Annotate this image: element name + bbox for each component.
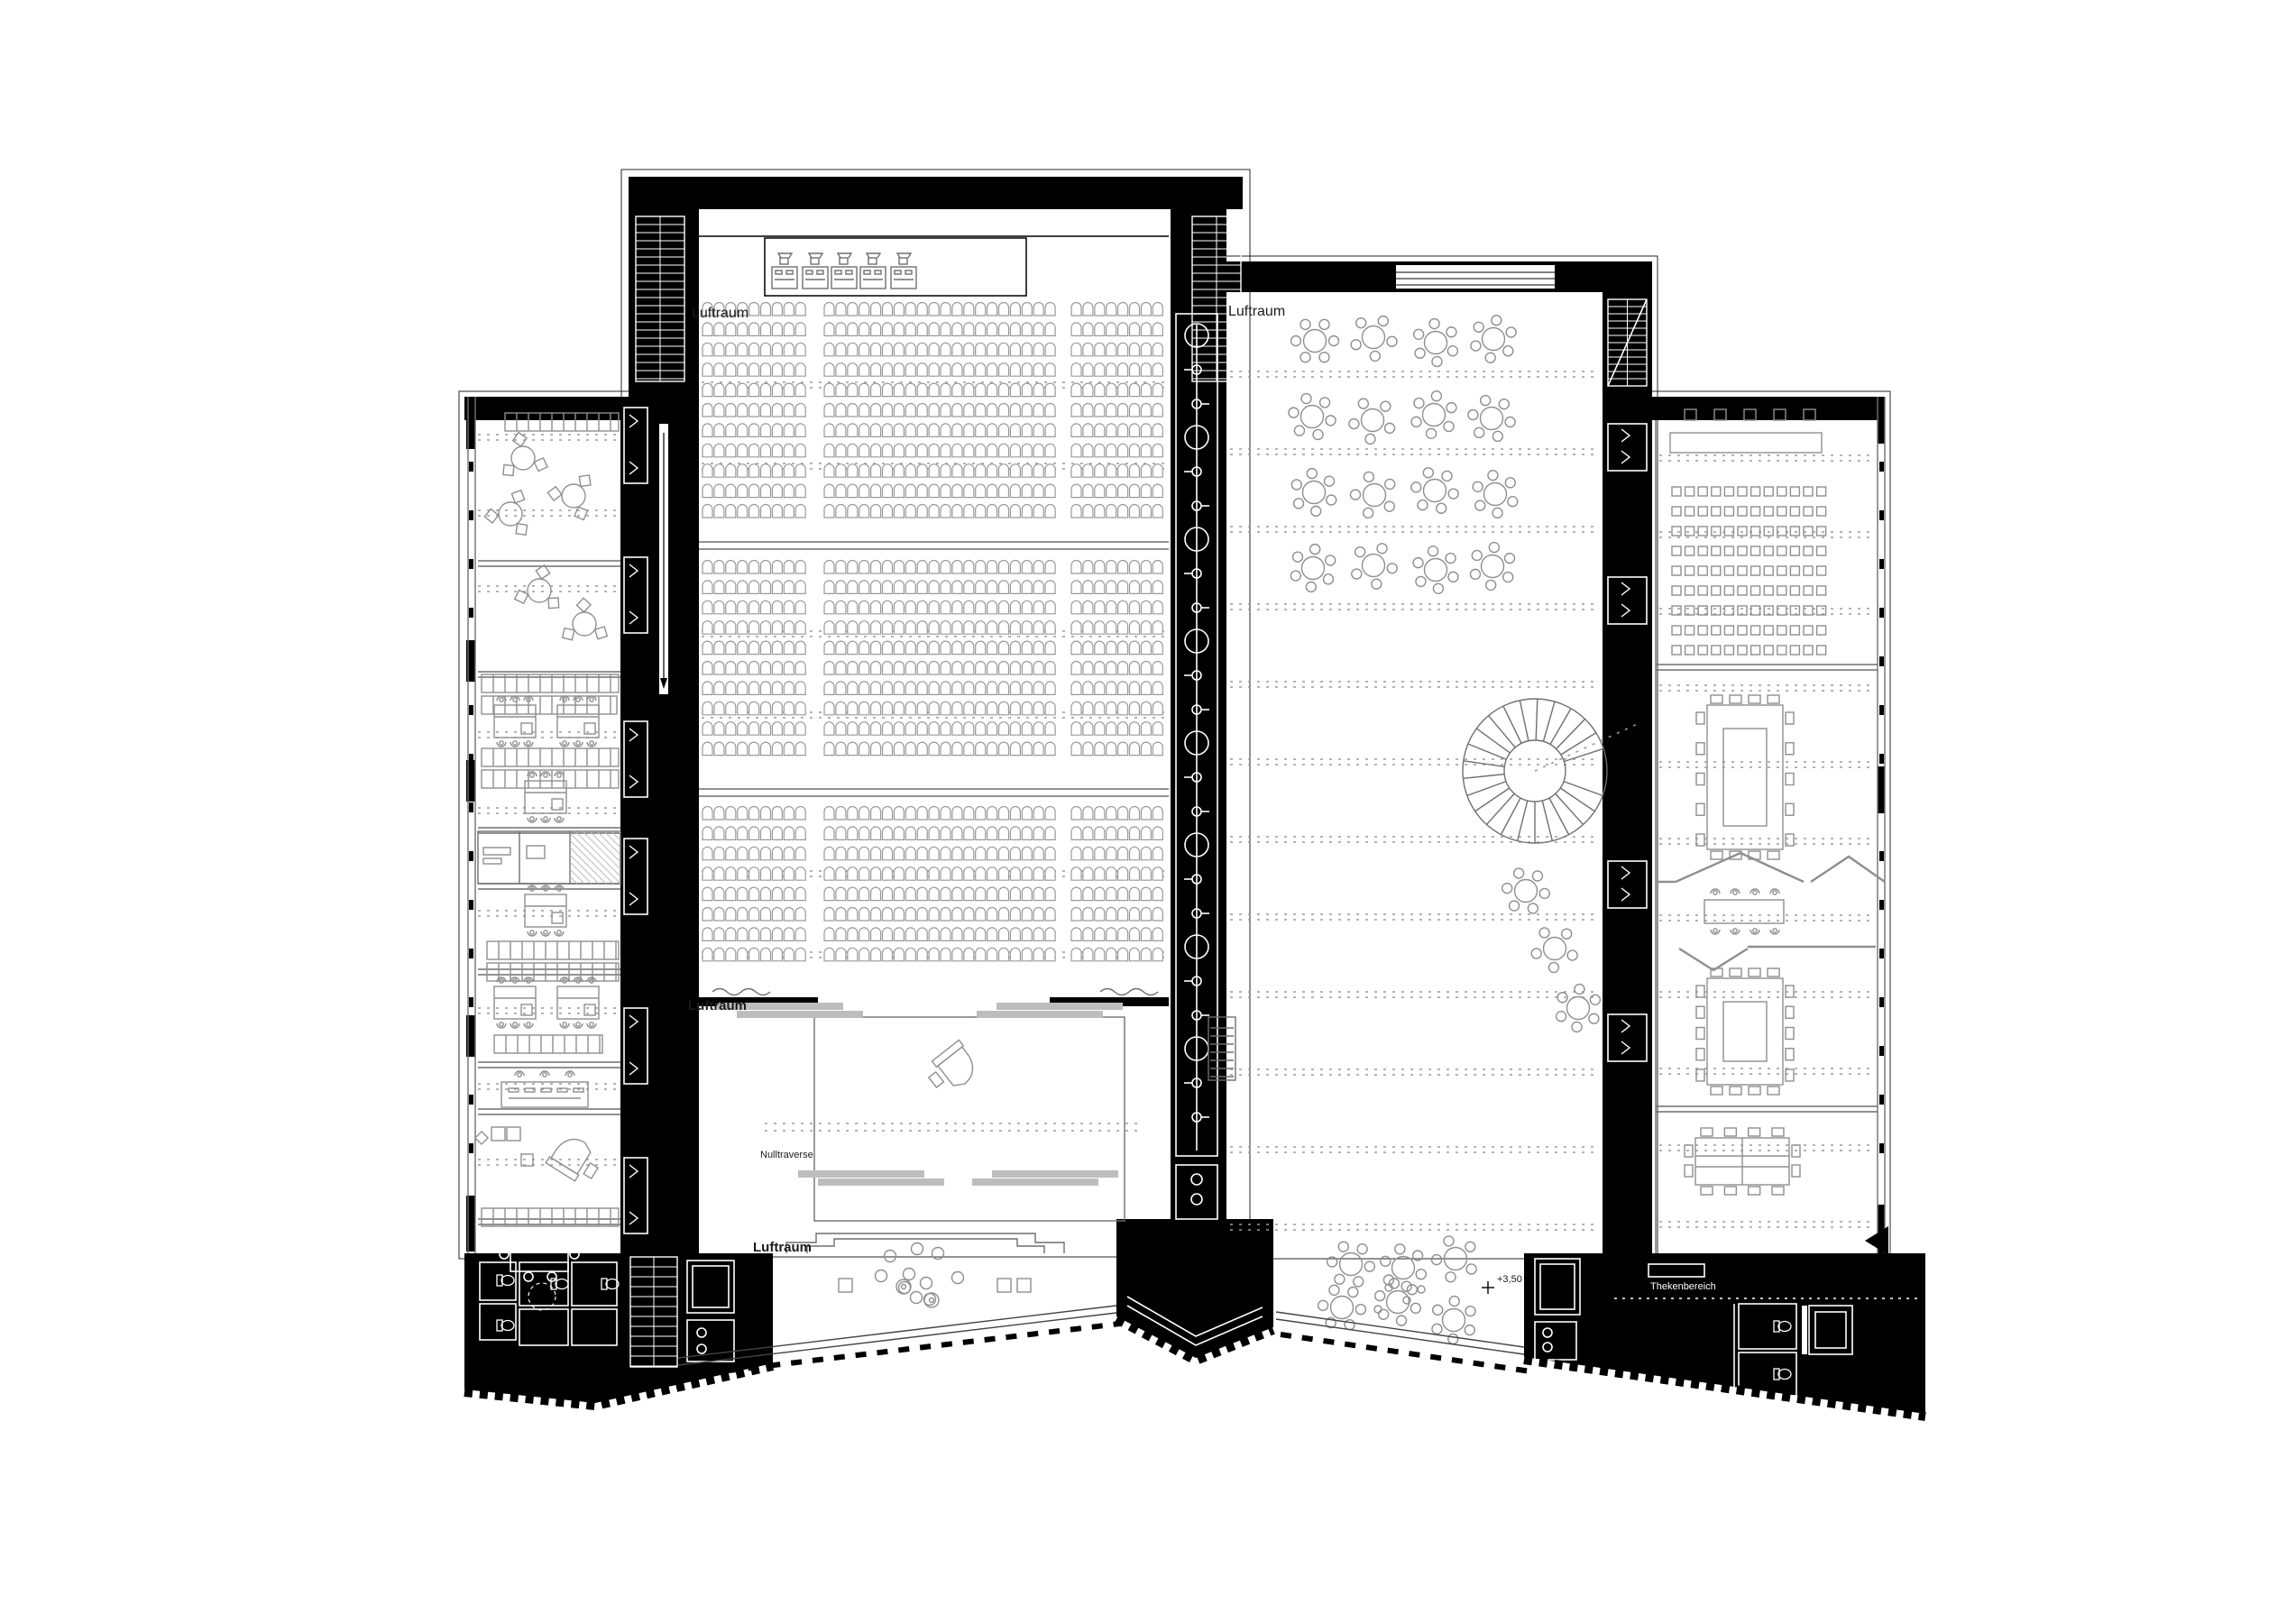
grand-piano-icon (922, 1041, 982, 1099)
right-wing-furniture (1656, 409, 1888, 1255)
label-thekenbereich: Thekenbereich (1650, 1281, 1716, 1292)
lobby-scatter (839, 1243, 1031, 1308)
entry-steps (786, 1233, 1064, 1253)
label-luftraum-auditorium: Luftraum (692, 306, 748, 321)
floor-plan-drawing: Luftraum Luftraum Luftraum Luftraum Null… (0, 0, 2296, 1623)
label-level-marker: +3,50 (1497, 1274, 1522, 1285)
terrain-slope-line (1276, 1312, 1524, 1347)
left-wing-service-block (478, 831, 620, 884)
left-wing-round-tables (484, 433, 607, 640)
entry-steps (807, 1239, 1044, 1253)
label-luftraum-lobby: Luftraum (753, 1240, 812, 1255)
stage-platform (814, 1017, 1125, 1221)
terrain-slope-line (1276, 1319, 1524, 1354)
projector-tables (772, 253, 916, 289)
label-luftraum-hall: Luftraum (1228, 304, 1285, 319)
auditorium-north-wall (629, 177, 1243, 209)
label-nulltraverse: Nulltraverse (760, 1150, 813, 1160)
auditorium-seats (703, 303, 1162, 961)
section-marker-triangle (1865, 1226, 1888, 1255)
right-wing-outline (1647, 391, 1890, 1259)
label-luftraum-stage: Luftraum (688, 998, 747, 1013)
curtain-squiggle (1100, 989, 1158, 995)
hall-round-tables (1289, 316, 1600, 1344)
hall-east-wall (1603, 261, 1652, 1253)
curtain-squiggle (712, 989, 770, 995)
floor-plan-page: Luftraum Luftraum Luftraum Luftraum Null… (0, 0, 2296, 1623)
hall-outline (1221, 256, 1658, 1259)
terrain-hatch (1281, 1334, 1537, 1372)
east-facade-pier (1878, 397, 1885, 444)
right-wing-north-wall (1652, 397, 1883, 420)
south-center-core (1116, 1219, 1273, 1358)
